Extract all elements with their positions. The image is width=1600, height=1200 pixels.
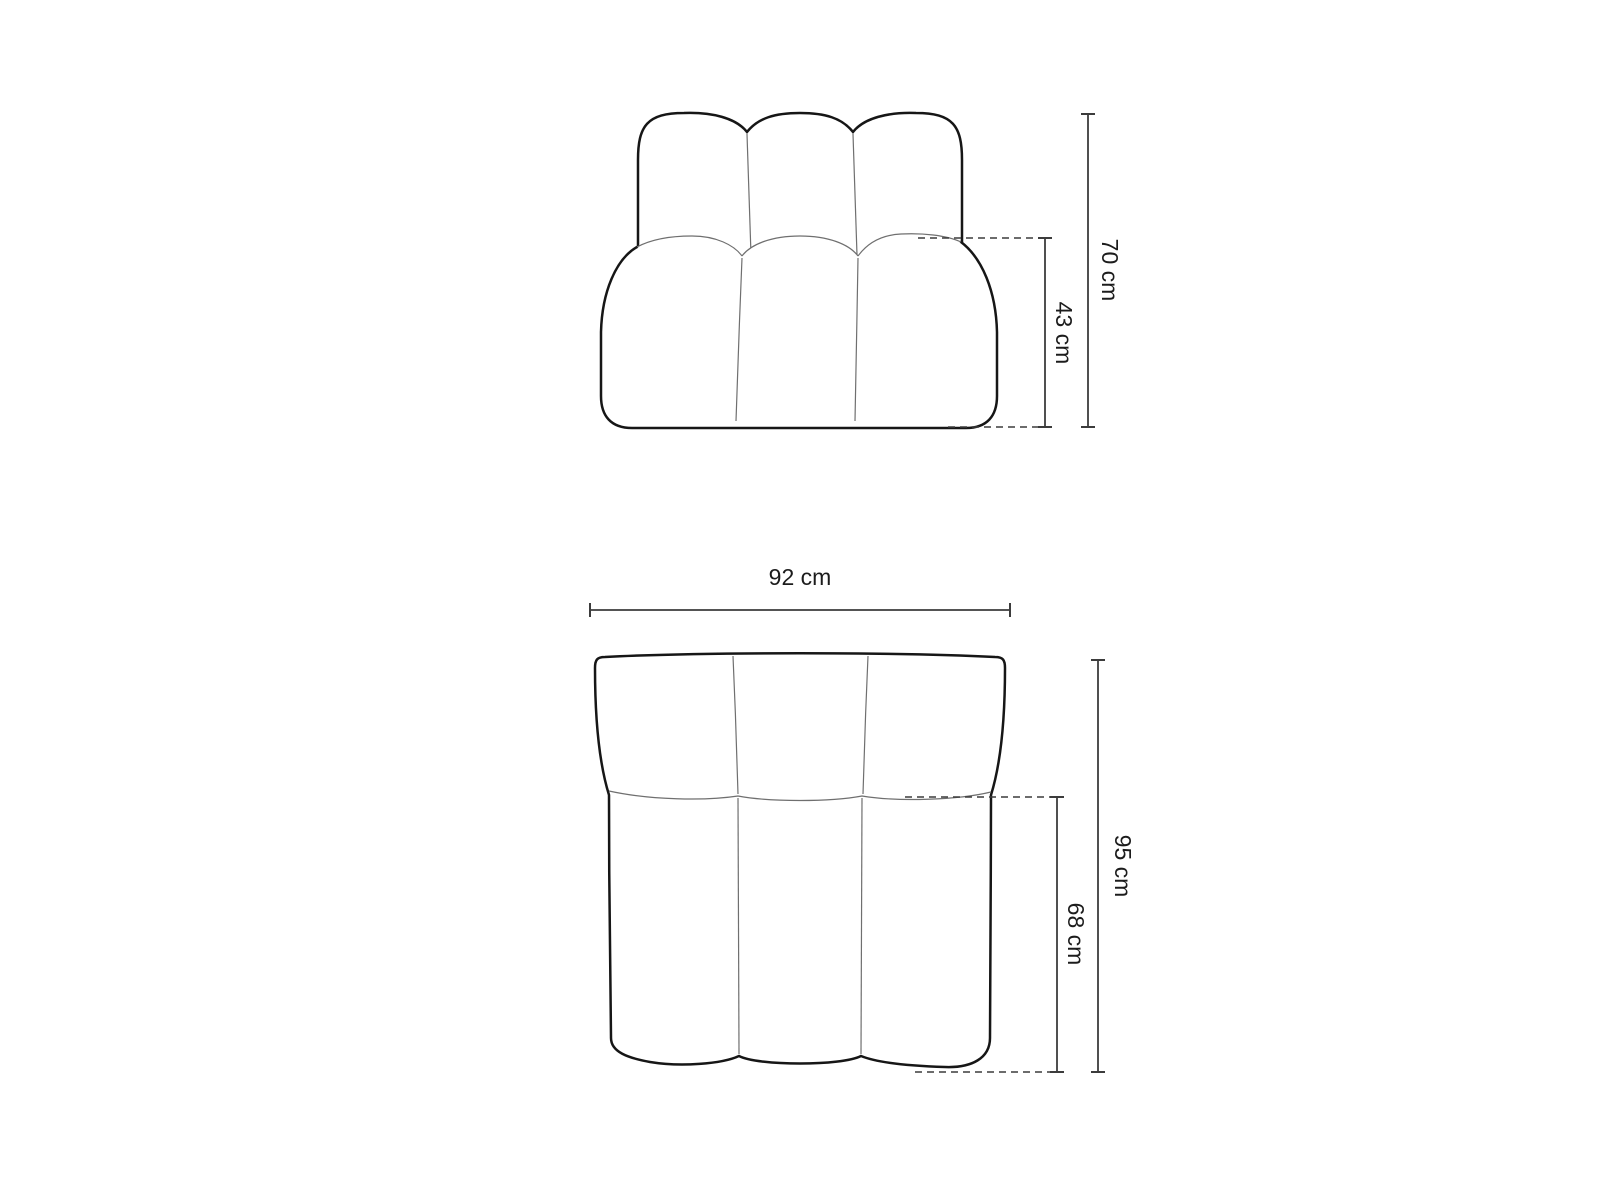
plan-outline	[595, 653, 1005, 1067]
dimension-seat-depth: 68 cm	[1050, 797, 1089, 1072]
dimension-label-70cm: 70 cm	[1097, 239, 1123, 302]
diagram-canvas: 43 cm 70 cm 92 cm	[0, 0, 1600, 1200]
dimension-seat-height: 43 cm	[1038, 238, 1077, 427]
dimension-total-height: 70 cm	[1081, 114, 1123, 427]
dimension-total-width: 92 cm	[590, 564, 1010, 617]
dimension-label-68cm: 68 cm	[1063, 903, 1089, 966]
dimension-total-depth: 95 cm	[1091, 660, 1136, 1072]
top-plan-view: 92 cm 68 cm	[590, 564, 1136, 1072]
seat-outline	[601, 234, 997, 428]
dimension-label-43cm: 43 cm	[1051, 302, 1077, 365]
dimension-label-95cm: 95 cm	[1110, 835, 1136, 898]
dimension-label-92cm: 92 cm	[769, 564, 832, 590]
front-elevation-view: 43 cm 70 cm	[601, 113, 1123, 428]
